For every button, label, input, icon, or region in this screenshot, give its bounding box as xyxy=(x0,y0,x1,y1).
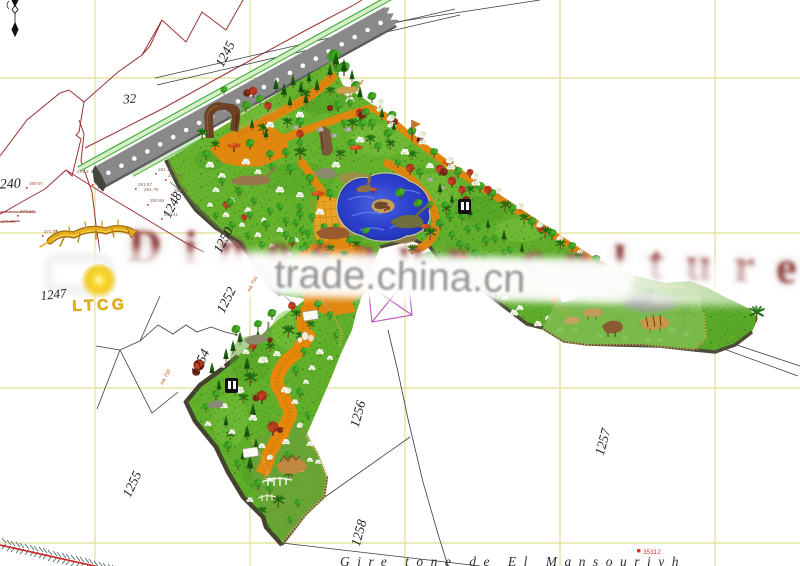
svg-text:32: 32 xyxy=(122,91,138,107)
svg-text:280.66: 280.66 xyxy=(150,198,164,203)
svg-text:281.78: 281.78 xyxy=(144,187,158,192)
svg-text:278.3: 278.3 xyxy=(77,169,89,174)
svg-text:281.73: 281.73 xyxy=(158,167,172,172)
svg-text:Gire tone de El Mansouriyh: Gire tone de El Mansouriyh xyxy=(340,554,686,566)
svg-text:374.38: 374.38 xyxy=(1,219,15,224)
svg-text:1240: 1240 xyxy=(0,177,21,193)
svg-text:1247: 1247 xyxy=(40,285,68,303)
svg-text:LTCG: LTCG xyxy=(72,296,128,315)
svg-text:371.62: 371.62 xyxy=(44,229,58,234)
svg-text:374.87: 374.87 xyxy=(20,209,34,214)
svg-text:280.41: 280.41 xyxy=(164,212,178,217)
svg-text:389.97: 389.97 xyxy=(29,181,43,186)
svg-text:trade.china.cn: trade.china.cn xyxy=(274,252,526,301)
svg-text:281.19: 281.19 xyxy=(174,188,188,193)
svg-text:283.56: 283.56 xyxy=(168,173,182,178)
svg-text:35312: 35312 xyxy=(643,549,661,556)
